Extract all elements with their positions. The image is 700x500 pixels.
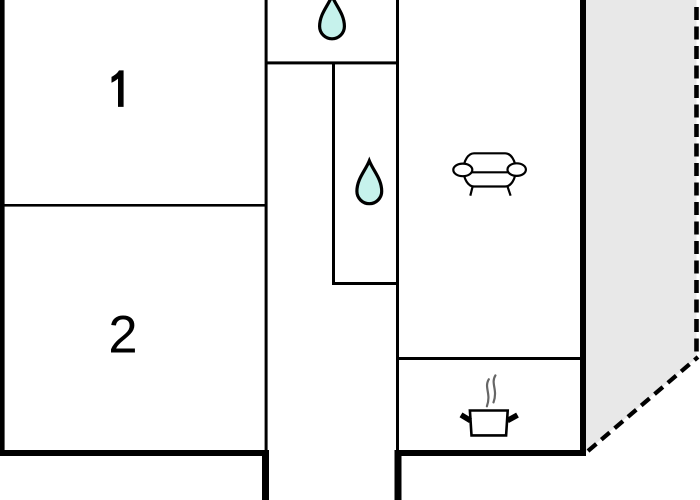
svg-text:2: 2 xyxy=(108,305,137,364)
